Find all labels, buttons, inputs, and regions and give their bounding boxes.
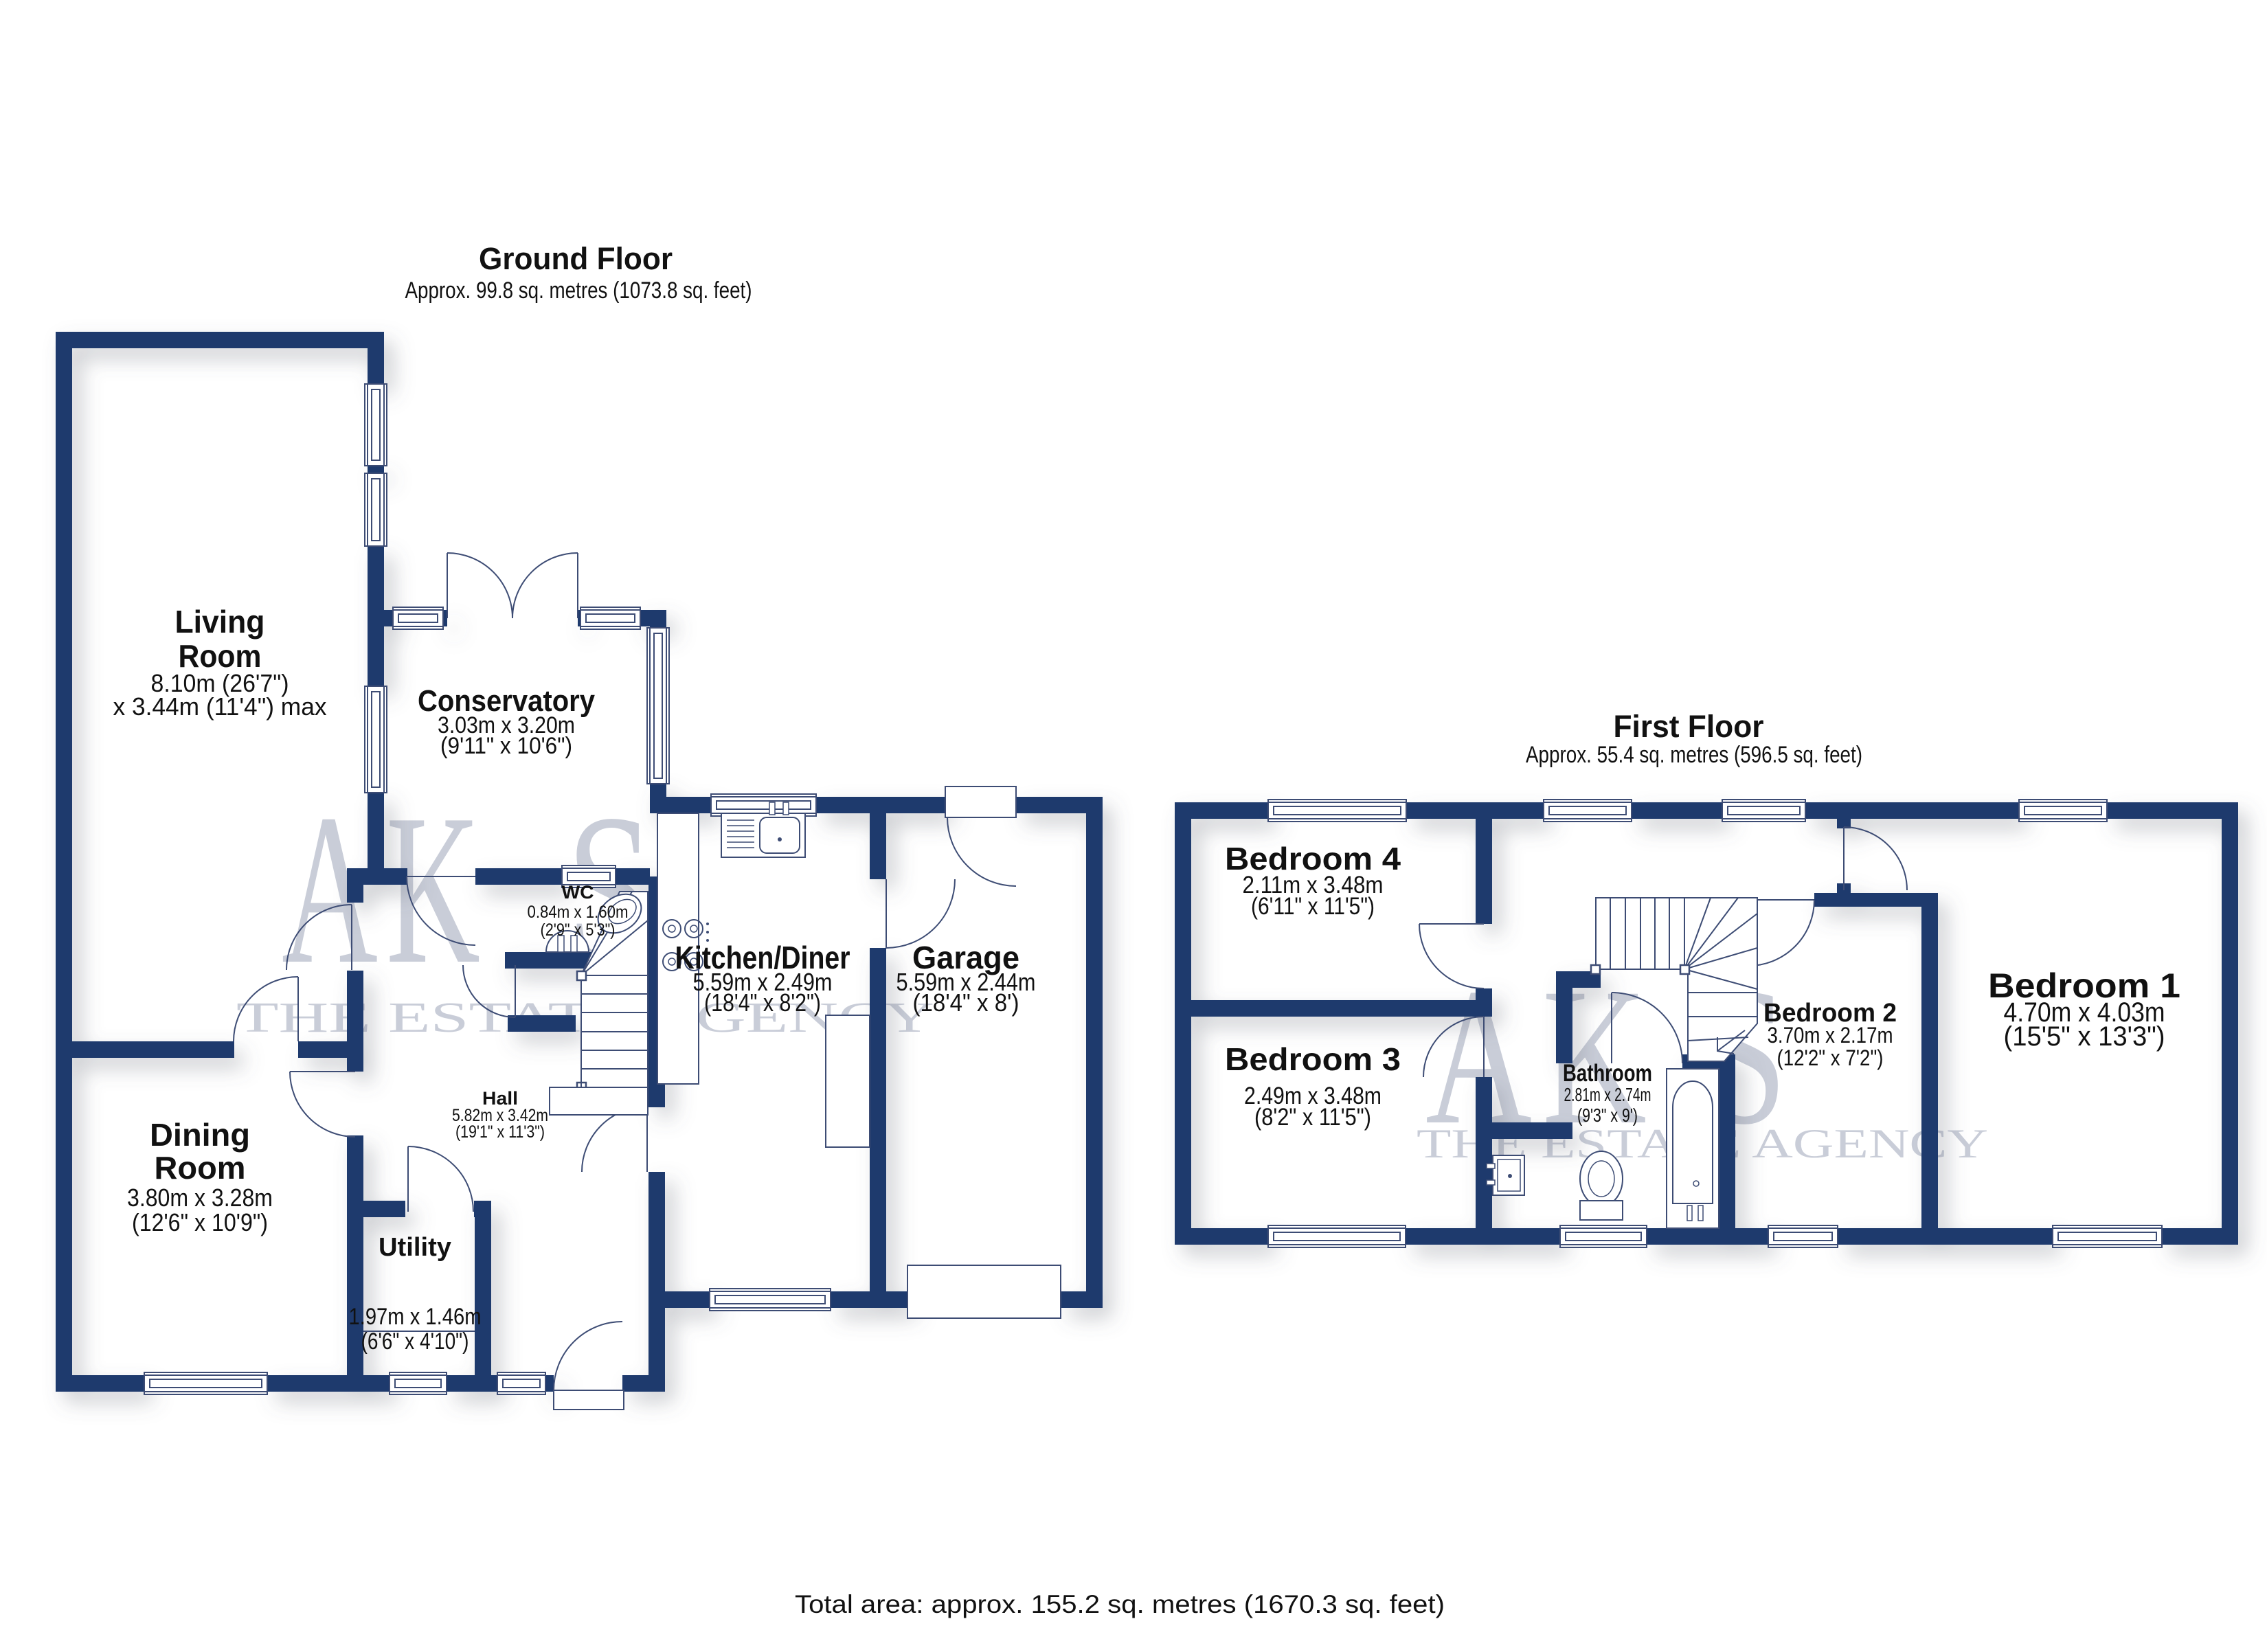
svg-text:(19'1" x 11'3"): (19'1" x 11'3") — [455, 1122, 545, 1142]
svg-text:First Floor: First Floor — [1614, 709, 1764, 744]
svg-text:(9'11" x 10'6"): (9'11" x 10'6") — [440, 733, 572, 759]
svg-text:(18'4" x 8'): (18'4" x 8') — [913, 988, 1019, 1017]
svg-text:Approx. 99.8 sq. metres (1073.: Approx. 99.8 sq. metres (1073.8 sq. feet… — [405, 278, 752, 304]
svg-text:(6'6" x 4'10"): (6'6" x 4'10") — [361, 1328, 469, 1355]
svg-text:(9'3" x 9'): (9'3" x 9') — [1577, 1105, 1638, 1126]
svg-text:K: K — [386, 769, 480, 1008]
svg-text:Bedroom 3: Bedroom 3 — [1225, 1041, 1401, 1077]
svg-text:Room: Room — [155, 1150, 246, 1186]
svg-text:(6'11" x 11'5"): (6'11" x 11'5") — [1251, 893, 1375, 920]
svg-text:(18'4" x 8'2"): (18'4" x 8'2") — [704, 988, 821, 1017]
svg-text:Approx. 55.4 sq. metres (596.5: Approx. 55.4 sq. metres (596.5 sq. feet) — [1526, 742, 1862, 768]
svg-text:1.97m x 1.46m: 1.97m x 1.46m — [349, 1304, 482, 1330]
svg-text:Living: Living — [175, 604, 265, 640]
svg-text:0.84m x 1.60m: 0.84m x 1.60m — [528, 903, 629, 922]
svg-text:x 3.44m (11'4") max: x 3.44m (11'4") max — [113, 692, 327, 721]
svg-text:Ground Floor: Ground Floor — [479, 241, 673, 276]
svg-text:(12'2" x 7'2"): (12'2" x 7'2") — [1777, 1045, 1884, 1070]
svg-text:WC: WC — [562, 882, 594, 903]
svg-text:2.81m x 2.74m: 2.81m x 2.74m — [1564, 1084, 1651, 1105]
svg-text:Utility: Utility — [379, 1233, 451, 1262]
svg-text:(12'6" x 10'9"): (12'6" x 10'9") — [132, 1208, 268, 1236]
svg-text:(15'5" x 13'3"): (15'5" x 13'3") — [2004, 1021, 2165, 1052]
svg-text:3.80m x 3.28m: 3.80m x 3.28m — [127, 1184, 273, 1212]
svg-text:(2'9" x 5'3"): (2'9" x 5'3") — [541, 920, 616, 940]
svg-text:Total area: approx. 155.2 sq.: Total area: approx. 155.2 sq. metres (16… — [795, 1590, 1445, 1618]
svg-text:Bathroom: Bathroom — [1563, 1060, 1652, 1087]
svg-text:Dining: Dining — [150, 1117, 250, 1153]
svg-text:(8'2" x 11'5"): (8'2" x 11'5") — [1254, 1104, 1371, 1131]
svg-text:3.70m x 2.17m: 3.70m x 2.17m — [1768, 1023, 1893, 1048]
